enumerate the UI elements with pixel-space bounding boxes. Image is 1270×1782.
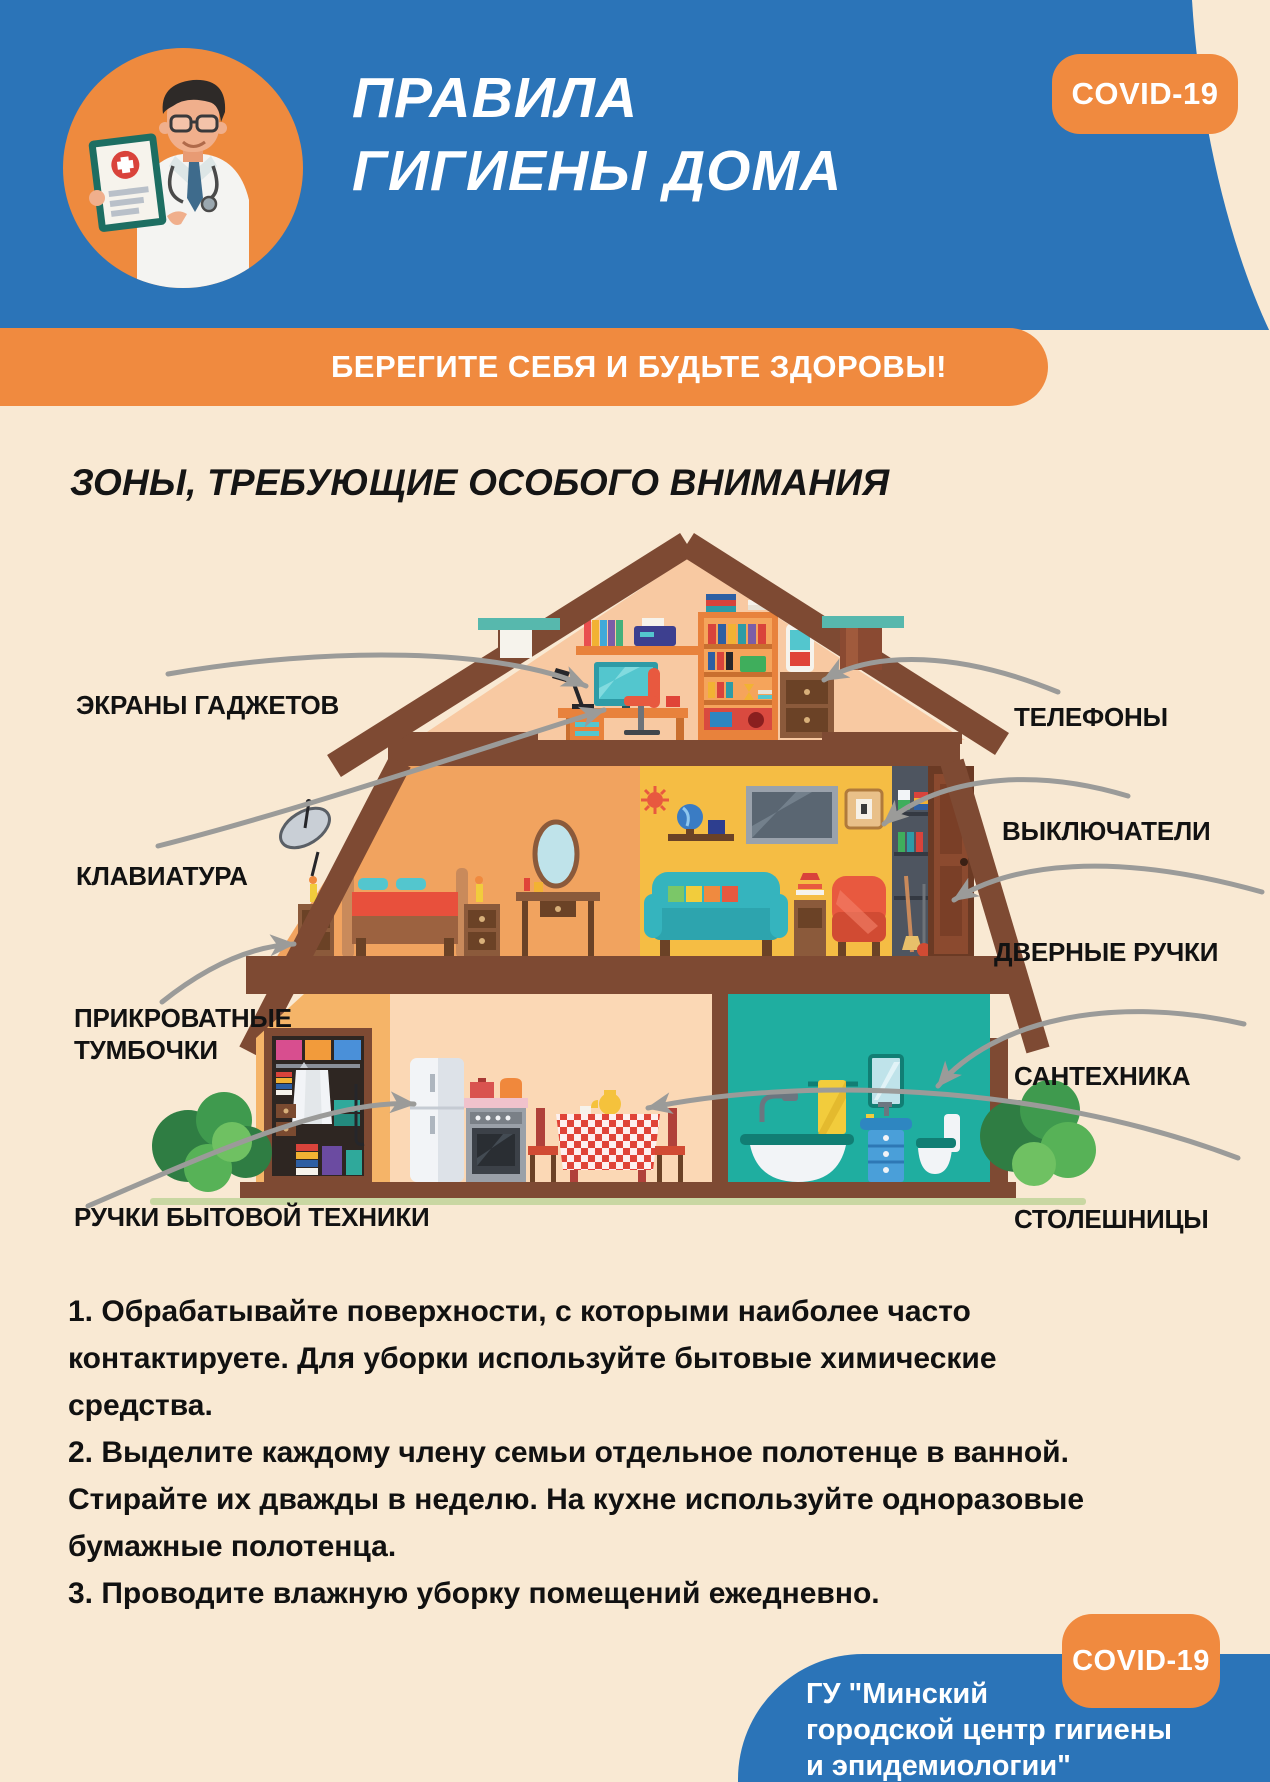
fridge: [410, 1058, 464, 1182]
zone-label-countertops: СТОЛЕШНИЦЫ: [1014, 1204, 1209, 1236]
tip-2: 2. Выделите каждому члену семьи отдельно…: [68, 1429, 1218, 1570]
side-table: [794, 873, 826, 958]
bush-left: [152, 1092, 272, 1192]
ground-floor: [256, 994, 1008, 1182]
zone-label-phones: ТЕЛЕФОНЫ: [1014, 702, 1168, 734]
attic-bookshelf: [698, 612, 778, 740]
hygiene-tips: 1. Обрабатывайте поверхности, с которыми…: [68, 1288, 1218, 1617]
zone-label-nightstands: ПРИКРОВАТНЫЕ ТУМБОЧКИ: [74, 1003, 292, 1066]
zone-label-keyboard: КЛАВИАТУРА: [76, 861, 248, 893]
tv: [746, 786, 838, 844]
zone-label-door-handles: ДВЕРНЫЕ РУЧКИ: [994, 937, 1218, 969]
doctor-avatar: [63, 48, 303, 288]
light-switch: [846, 790, 882, 828]
tip-3: 3. Проводите влажную уборку помещений еж…: [68, 1570, 1218, 1617]
poster: ПРАВИЛА ГИГИЕНЫ ДОМА: [0, 0, 1270, 1782]
wall-clock: [641, 786, 669, 814]
zone-label-screens: ЭКРАНЫ ГАДЖЕТОВ: [76, 690, 339, 722]
zone-label-appliance-handles: РУЧКИ БЫТОВОЙ ТЕХНИКИ: [74, 1202, 429, 1234]
zone-label-switches: ВЫКЛЮЧАТЕЛИ: [1002, 816, 1211, 848]
footer-organization: ГУ "Минский городской центр гигиены и эп…: [806, 1676, 1172, 1782]
floor-slab: [246, 956, 1012, 994]
doctor-illustration: [63, 48, 303, 288]
hall-closet: [892, 766, 932, 958]
attic-nightstand: [780, 672, 834, 738]
clipboard: [88, 133, 167, 233]
zone-label-plumbing: САНТЕХНИКА: [1014, 1061, 1190, 1093]
door-handle: [960, 858, 968, 866]
bathroom-mirror: [870, 1056, 902, 1106]
tip-1: 1. Обрабатывайте поверхности, с которыми…: [68, 1288, 1218, 1429]
doctor-glasses: [171, 116, 191, 131]
mug: [666, 696, 680, 707]
